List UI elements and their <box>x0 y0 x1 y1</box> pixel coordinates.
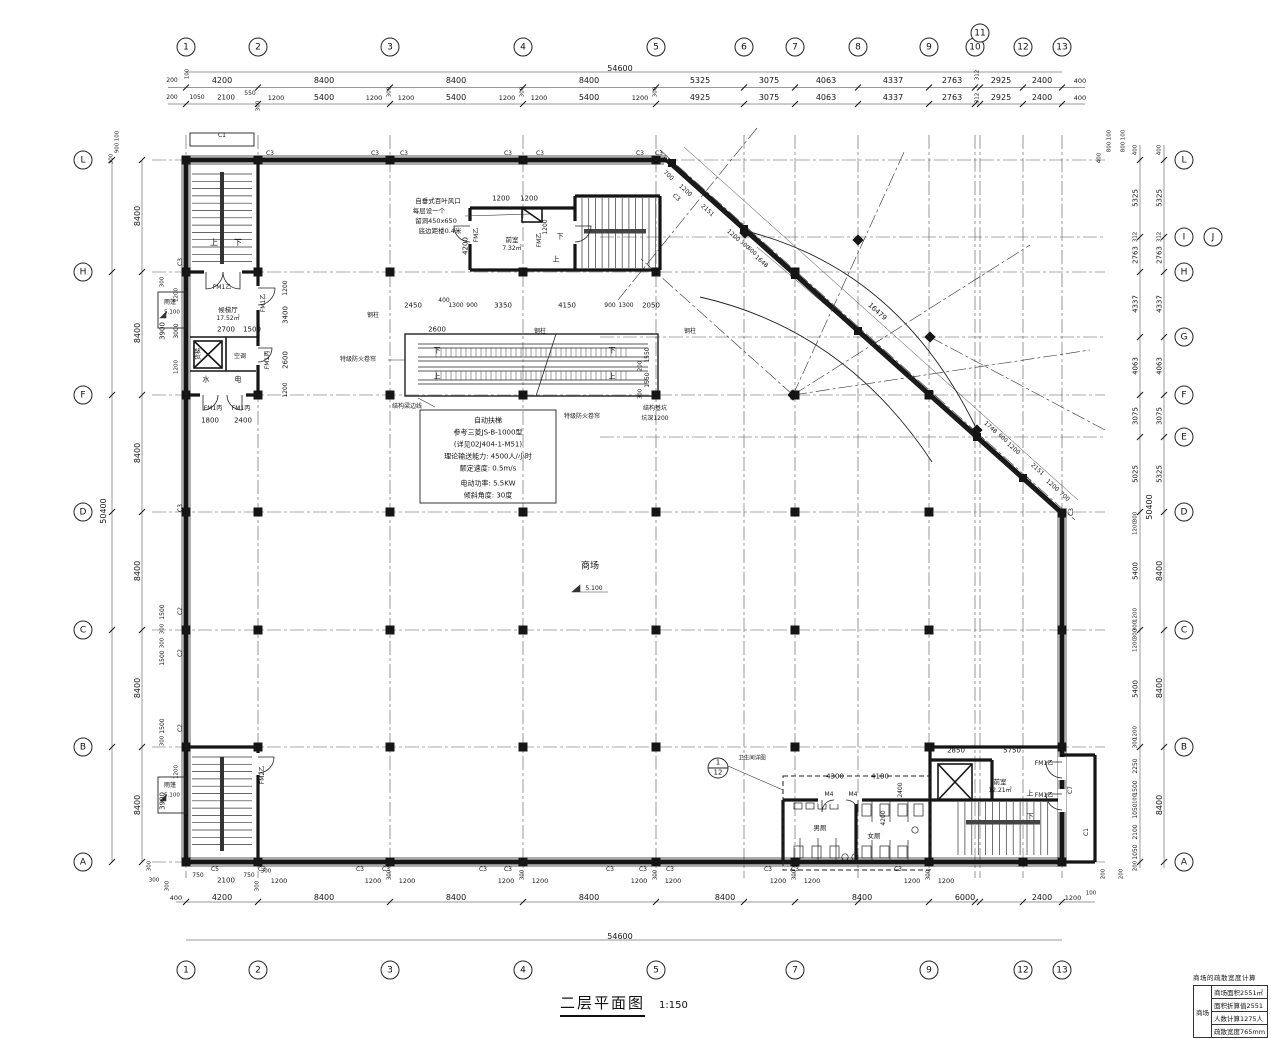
drawing-title-block: 二层平面图 1:150 <box>560 992 688 1017</box>
grid-bubble-9: 9 <box>920 38 939 57</box>
annotation-label: 300 <box>165 881 171 892</box>
structural-column <box>519 391 528 400</box>
annotation-label: 1200 <box>804 878 821 885</box>
annotation-label: C3 <box>258 867 266 873</box>
structural-column <box>1019 858 1028 867</box>
annotation-label: C3 <box>536 151 544 157</box>
annotation-label: 2600 <box>283 351 290 369</box>
annotation-label: 1500 <box>160 604 166 619</box>
annotation-label: 2100 <box>1133 824 1139 839</box>
annotation-label: 5400 <box>446 94 466 102</box>
structural-column <box>386 743 395 752</box>
annotation-label: 水 <box>203 377 210 384</box>
annotation-label: M4 <box>849 792 858 798</box>
structural-column <box>386 391 395 400</box>
structural-column <box>854 327 862 335</box>
annotation-label: 100 <box>185 69 191 80</box>
annotation-label: 2700 <box>217 327 235 334</box>
annotation-label: 2925 <box>991 77 1011 85</box>
annotation-label: C1 <box>1084 828 1090 836</box>
annotation-label: C3 <box>504 867 512 873</box>
structural-column <box>254 391 263 400</box>
annotation-label: 2400 <box>1032 94 1052 102</box>
annotation-label: 1050 <box>1133 844 1139 859</box>
annotation-label: 5400 <box>1133 562 1140 580</box>
structural-column <box>519 156 528 165</box>
annotation-label: 17.52㎡ <box>216 316 239 322</box>
annotation-label: C3 <box>371 151 379 157</box>
annotation-label: 电 <box>235 377 242 384</box>
structural-column <box>254 743 263 752</box>
table-group-cell: 商场 <box>1194 986 1212 1038</box>
annotation-label: FM乙 <box>474 228 480 243</box>
annotation-label: 2600 <box>428 327 446 334</box>
drawing-scale: 1:150 <box>659 1000 688 1011</box>
annotation-label: 1200 <box>1065 895 1082 902</box>
annotation-label: C3 <box>636 151 644 157</box>
annotation-label: 5400 <box>1133 680 1140 698</box>
annotation-label: FM乙 <box>537 233 543 248</box>
annotation-label: 50400 <box>1146 494 1154 519</box>
structural-column <box>254 156 263 165</box>
structural-column <box>254 268 263 277</box>
annotation-label: 特级防火卷帘 <box>564 414 600 420</box>
stair-rails <box>220 172 1040 851</box>
annotation-label: 4200 <box>463 237 470 255</box>
grid-bubble-3: 3 <box>381 38 400 57</box>
annotation-label: 8400 <box>446 894 466 902</box>
annotation-label: 900 <box>466 303 477 309</box>
annotation-label: 1200 <box>398 95 415 102</box>
annotation-label: 200 <box>1101 869 1107 880</box>
annotation-label: 4337 <box>883 94 903 102</box>
annotation-label: 5325 <box>1133 189 1140 207</box>
grid-bubble-E: E <box>1175 428 1194 447</box>
annotation-label: FM1乙 <box>1035 761 1053 767</box>
annotation-label: 8400 <box>1156 678 1164 698</box>
annotation-label: 100 <box>1107 130 1113 141</box>
annotation-label: 800 <box>1107 142 1113 153</box>
annotation-label: 750 <box>192 873 203 879</box>
structural-column <box>925 508 934 517</box>
annotation-label: 8400 <box>134 795 142 815</box>
evacuation-calc-table: 商场的疏散宽度计算 商场商场面积2551㎡面积折算值2551人数计算1275人疏… <box>1193 972 1271 1038</box>
annotation-label: 3075 <box>759 94 779 102</box>
grid-bubble-13: 13 <box>1053 38 1072 57</box>
annotation-label: 4337 <box>1157 295 1164 313</box>
annotation-label: 雨篷 <box>164 300 176 306</box>
annotation-label: 2763 <box>1157 246 1164 264</box>
annotation-label: C3 <box>479 867 487 873</box>
annotation-label: C1 <box>218 133 226 139</box>
structural-column <box>1058 626 1067 635</box>
annotation-label: 6000 <box>955 894 975 902</box>
annotation-label: 54600 <box>607 933 632 941</box>
structural-column <box>386 508 395 517</box>
annotation-label: 1200 <box>1133 638 1139 652</box>
annotation-label: 300 <box>638 389 644 400</box>
structural-column <box>1058 509 1066 517</box>
annotation-label: 300 <box>147 861 153 872</box>
annotation-label: 100 <box>115 131 121 142</box>
annotation-label: 1500 <box>160 650 166 665</box>
structural-column <box>652 391 661 400</box>
structural-column <box>182 626 191 635</box>
structural-column <box>254 626 263 635</box>
annotation-label: 下 <box>609 348 616 355</box>
grid-bubble-2: 2 <box>249 38 268 57</box>
grid-bubble-5: 5 <box>647 38 666 57</box>
annotation-label: 2450 <box>404 303 422 310</box>
grid-bubble-H: H <box>74 263 93 282</box>
annotation-label: 1500 <box>243 327 261 334</box>
annotation-label: 3900 <box>160 322 167 340</box>
annotation-label: 1200 <box>520 196 538 203</box>
annotation-label: 2100 <box>217 95 235 102</box>
annotation-label: 2850 <box>947 748 965 755</box>
annotation-label: C3 <box>356 867 364 873</box>
annotation-label: 底边距楼0.4米 <box>419 228 462 235</box>
structural-column <box>925 390 933 398</box>
annotation-label: 100 <box>1121 130 1127 141</box>
annotation-label: 5400 <box>579 94 599 102</box>
structural-column <box>1058 743 1067 752</box>
annotation-label: 50400 <box>100 498 108 523</box>
annotation-label: M4 <box>825 792 834 798</box>
table-row: 商场商场面积2551㎡ <box>1194 986 1268 999</box>
annotation-label: 1200 <box>174 765 180 779</box>
structural-column <box>182 858 191 867</box>
drawing-title: 二层平面图 <box>560 992 645 1017</box>
curved-facade-arcs <box>700 230 978 462</box>
annotation-label: 312 <box>975 70 981 81</box>
structural-column <box>652 508 661 517</box>
annotation-label: 550 <box>244 91 255 97</box>
grid-bubble-9: 9 <box>920 961 939 980</box>
annotation-label: 前室 <box>506 237 519 244</box>
annotation-label: 4150 <box>558 303 576 310</box>
annotation-label: 卫生间详图 <box>738 756 766 762</box>
annotation-label: 4200 <box>212 77 232 85</box>
structural-column <box>791 743 800 752</box>
grid-bubble-7: 7 <box>786 961 805 980</box>
annotation-label: 1200 <box>665 878 682 885</box>
annotation-label: 1200 <box>1133 521 1139 535</box>
structural-column <box>182 268 191 277</box>
structural-column <box>925 626 934 635</box>
annotation-label: 1200 <box>271 878 288 885</box>
annotation-label: 自垂式百叶风口 <box>415 198 461 205</box>
annotation-label: 900 <box>604 303 615 309</box>
annotation-label: 100 <box>1086 891 1097 897</box>
structural-column <box>182 391 191 400</box>
annotation-label: 400 <box>1097 153 1103 164</box>
grid-bubble-B: B <box>74 738 93 757</box>
annotation-label: FM1乙 <box>261 294 267 312</box>
grid-bubble-A: A <box>1175 853 1194 872</box>
annotation-label: 1200 <box>283 382 289 397</box>
annotation-label: 额定速度: 0.5m/s <box>460 466 517 473</box>
annotation-label: 8400 <box>579 894 599 902</box>
annotation-label: 1200 <box>268 95 285 102</box>
annotation-label: 200 <box>166 95 177 101</box>
annotation-label: 倾斜角度: 30度 <box>464 493 513 500</box>
annotation-label: C3 <box>1069 508 1075 516</box>
annotation-label: 货梯 <box>196 348 202 360</box>
annotation-label: 4337 <box>1133 295 1140 313</box>
annotation-label: 上 <box>1027 791 1034 798</box>
structural-column <box>926 743 935 752</box>
annotation-label: 候梯厅 <box>218 307 238 314</box>
annotation-label: C3 <box>266 151 274 157</box>
annotation-label: 商场 <box>581 563 599 572</box>
annotation-label: 留洞450x650 <box>415 218 457 225</box>
annotation-label: 900 <box>115 143 121 154</box>
annotation-label: 300 <box>160 638 166 649</box>
grid-bubble-I: I <box>1175 228 1194 247</box>
construction-lines <box>618 128 1105 520</box>
annotation-label: 8400 <box>134 678 142 698</box>
grid-bubble-4: 4 <box>514 961 533 980</box>
grid-bubble-A: A <box>74 853 93 872</box>
annotation-label: 8400 <box>134 443 142 463</box>
annotation-label: 312 <box>975 93 981 104</box>
annotation-label: 下 <box>234 239 242 247</box>
annotation-label: 5400 <box>314 94 334 102</box>
annotation-label: (详见02J404-1-M51) <box>454 442 522 449</box>
annotation-label: 8400 <box>715 894 735 902</box>
annotation-label: 8400 <box>134 561 142 581</box>
table-value-cell: 人数计算1275人 <box>1212 1012 1268 1025</box>
annotation-label: 3000 <box>174 323 180 338</box>
floor-plan-page: 1234567891011121312345791213LHFDCBALIJHG… <box>0 0 1271 1039</box>
annotation-label: 300 <box>653 87 659 98</box>
callout-top-number: 1 <box>716 760 720 767</box>
structural-column <box>386 156 395 165</box>
annotation-label: 1200 <box>365 878 382 885</box>
annotation-label: FM2乙 <box>260 766 266 784</box>
annotation-label: 1200 <box>499 95 516 102</box>
annotation-label: 空调 <box>234 354 246 360</box>
annotation-label: 5325 <box>690 77 710 85</box>
grid-bubble-F: F <box>74 386 93 405</box>
grid-bubble-H: H <box>1175 263 1194 282</box>
structural-column <box>386 268 395 277</box>
annotation-label: 300 <box>109 154 115 165</box>
structural-column <box>652 268 661 277</box>
annotation-label: 312 <box>1157 232 1163 243</box>
annotation-label: C3 <box>666 867 674 873</box>
annotation-label: FM1丙 <box>265 351 271 369</box>
annotation-label: 每层设一个 <box>413 208 446 215</box>
annotation-label: 1200 <box>632 95 649 102</box>
grid-bubble-1: 1 <box>177 961 196 980</box>
grid-bubble-12: 12 <box>1014 38 1033 57</box>
annotation-label: 54600 <box>607 65 632 73</box>
structural-column <box>182 743 191 752</box>
annotation-label: 5025 <box>1133 465 1140 483</box>
annotation-label: 2400 <box>1032 894 1052 902</box>
annotation-label: 男厕 <box>814 825 827 832</box>
annotation-label: C3 <box>178 258 184 266</box>
structural-column <box>1058 858 1067 867</box>
table-value-cell: 疏散宽度765mm <box>1212 1025 1268 1038</box>
annotation-label: 300 <box>160 736 166 747</box>
annotation-label: 3350 <box>494 303 512 310</box>
annotation-label: 前室 <box>994 779 1007 786</box>
annotation-label: C3 <box>400 151 408 157</box>
annotation-label: 8400 <box>1156 561 1164 581</box>
annotation-label: 2250 <box>1133 758 1139 773</box>
annotation-label: 12.21㎡ <box>988 788 1011 794</box>
structural-column <box>519 508 528 517</box>
annotation-label: 1550 <box>645 372 651 387</box>
annotation-label: 钢柱 <box>367 313 379 319</box>
annotation-label: 100 <box>1134 794 1139 804</box>
annotation-label: 女厕 <box>868 833 881 840</box>
grid-bubble-L: L <box>74 151 93 170</box>
structural-column <box>519 268 528 277</box>
annotation-label: C5 <box>211 867 219 873</box>
annotation-label: 上 <box>210 239 218 247</box>
annotation-label: 300 <box>160 277 166 288</box>
annotation-label: 1300 <box>448 303 463 309</box>
annotation-label: 400 <box>1074 95 1086 102</box>
structural-column <box>652 626 661 635</box>
annotation-label: 1050 <box>1133 803 1139 818</box>
annotation-label: 1050 <box>189 95 204 101</box>
annotation-label: FM1丙 <box>232 406 250 412</box>
annotation-label: 312 <box>1133 232 1139 243</box>
annotation-label: C3 <box>382 867 390 873</box>
annotation-label: 400 <box>170 895 182 902</box>
annotation-label: 特级防火卷帘 <box>340 357 376 363</box>
annotation-label: 400 <box>1074 78 1086 85</box>
structural-column <box>924 331 935 342</box>
annotation-label: 300 <box>160 624 166 635</box>
structural-column <box>791 626 800 635</box>
grid-bubble-1: 1 <box>177 38 196 57</box>
annotation-label: 800 <box>1121 142 1127 153</box>
annotation-label: 750 <box>243 873 254 879</box>
annotation-label: C3 <box>606 867 614 873</box>
annotation-label: 2763 <box>942 77 962 85</box>
annotation-label: C2 <box>178 724 184 732</box>
annotation-label: 1200 <box>283 280 289 295</box>
grid-bubble-G: G <box>1175 328 1194 347</box>
annotation-label: 2400 <box>1032 77 1052 85</box>
escalator-well <box>405 334 658 396</box>
annotation-label: 400 <box>1133 145 1139 156</box>
annotation-label: 1200 <box>631 878 648 885</box>
calc-table-title: 商场的疏散宽度计算 <box>1193 972 1271 982</box>
annotation-label: 3400 <box>283 306 290 324</box>
annotation-label: 300 <box>520 870 526 881</box>
annotation-label: C3 <box>655 151 663 157</box>
annotation-label: 1200 <box>532 878 549 885</box>
annotation-label: 300 <box>255 881 261 892</box>
grid-bubble-12: 12 <box>1014 961 1033 980</box>
annotation-label: 1800 <box>201 418 219 425</box>
annotation-label: 1550 <box>645 347 651 362</box>
annotation-label: C2 <box>178 649 184 657</box>
annotation-label: 2925 <box>991 94 1011 102</box>
grid-bubble-8: 8 <box>849 38 868 57</box>
annotation-label: 理论输送能力: 4500人/小时 <box>444 454 532 461</box>
structural-column <box>668 159 676 167</box>
core-walls <box>186 160 1095 862</box>
annotation-label: 下 <box>1027 814 1034 821</box>
annotation-label: 2763 <box>1133 246 1140 264</box>
annotation-label: 1200 <box>366 95 383 102</box>
grid-bubble-11: 11 <box>971 24 990 43</box>
annotation-label: FM1乙 <box>213 285 231 291</box>
annotation-label: 8400 <box>314 77 334 85</box>
grid-bubble-6: 6 <box>735 38 754 57</box>
structural-column <box>519 858 528 867</box>
annotation-label: C3 <box>764 867 772 873</box>
structural-column <box>386 626 395 635</box>
annotation-label: 1200 <box>543 219 549 234</box>
annotation-label: 7.32㎡ <box>502 246 521 252</box>
annotation-label: 5325 <box>1157 189 1164 207</box>
annotation-label: 5325 <box>1157 465 1164 483</box>
annotation-label: 400 <box>1157 145 1163 156</box>
callout-bottom-number: 12 <box>714 770 723 777</box>
annotation-label: 4925 <box>690 94 710 102</box>
annotation-label: 下 <box>557 234 564 241</box>
canopies <box>158 133 254 813</box>
annotation-label: 300 <box>149 878 160 884</box>
door-openings <box>200 221 1066 812</box>
annotation-label: 4063 <box>1157 357 1164 375</box>
annotation-label: 4200 <box>212 894 232 902</box>
table-value-cell: 商场面积2551㎡ <box>1212 986 1268 999</box>
structural-column <box>519 743 528 752</box>
grid-bubble-4: 4 <box>514 38 533 57</box>
annotation-label: 4200 <box>881 810 887 825</box>
annotation-label: 结构梁边线 <box>392 404 422 410</box>
grid-bubble-2: 2 <box>249 961 268 980</box>
annotation-label: 2050 <box>642 303 660 310</box>
annotation-label: 2400 <box>234 418 252 425</box>
annotation-label: 雨篷 <box>164 783 176 789</box>
grid-bubble-J: J <box>1204 228 1223 247</box>
annotation-label: FM1乙 <box>1035 793 1053 799</box>
annotation-label: 1200 <box>904 878 921 885</box>
annotation-label: 4337 <box>883 77 903 85</box>
annotation-label: 4063 <box>816 94 836 102</box>
annotation-label: C3 <box>791 867 799 873</box>
structural-column <box>791 271 799 279</box>
annotation-label: C3 <box>894 867 902 873</box>
annotation-label: 8400 <box>134 206 142 226</box>
grid-bubble-B: B <box>1175 738 1194 757</box>
annotation-label: 钢柱 <box>534 329 546 335</box>
annotation-label: 自动扶梯 <box>474 418 502 425</box>
grid-bubble-5: 5 <box>647 961 666 980</box>
grid-bubble-F: F <box>1175 386 1194 405</box>
annotation-label: 300 <box>926 870 932 881</box>
structural-column <box>925 858 934 867</box>
annotation-label: 下 <box>434 348 441 355</box>
annotation-label: 8400 <box>314 894 334 902</box>
annotation-label: 电动功率: 5.5KW <box>461 481 516 488</box>
annotation-label: 8400 <box>579 77 599 85</box>
annotation-label: 1200 <box>938 878 955 885</box>
annotation-label: 2763 <box>942 94 962 102</box>
annotation-label: 300 <box>520 87 526 98</box>
